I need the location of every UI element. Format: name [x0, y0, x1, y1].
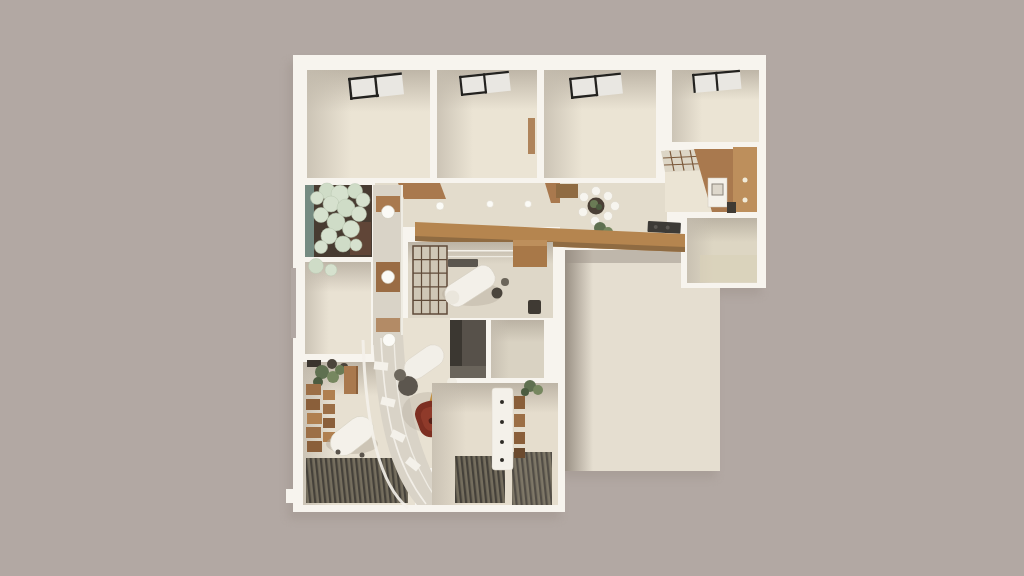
shelf-box	[306, 384, 321, 395]
round-planter	[315, 241, 328, 254]
shelf-box	[514, 432, 525, 444]
round-planter	[325, 264, 337, 276]
shelf-box	[323, 404, 335, 414]
shelf-box	[323, 390, 335, 400]
dark-bin	[528, 300, 541, 314]
dining-chair	[579, 208, 588, 217]
wall-stub	[286, 489, 294, 503]
shelf-box	[306, 399, 320, 410]
plant	[521, 388, 529, 396]
shoji-screen	[413, 246, 447, 314]
cooktop	[647, 221, 681, 234]
ceiling-light	[382, 206, 395, 219]
room-shade-left	[305, 262, 329, 354]
room-shade-left	[491, 320, 509, 378]
dining-chair	[592, 187, 601, 196]
small-beige-room	[491, 320, 544, 378]
curve-seat	[374, 361, 389, 370]
room-shade-left	[307, 70, 351, 178]
desk-leg	[336, 450, 341, 455]
tall-cabinet	[344, 366, 358, 394]
fridge-panel	[712, 184, 723, 195]
shelf-knob	[500, 400, 504, 404]
shelf-box	[514, 448, 525, 458]
shelf-box	[307, 413, 322, 424]
top-room-4	[672, 70, 759, 142]
table-plant	[596, 204, 602, 210]
deck-floor	[512, 452, 552, 505]
cabinet-knob	[743, 178, 748, 183]
ceiling-light	[487, 201, 494, 208]
left-wall-notch	[291, 268, 296, 338]
shelf-knob	[500, 458, 504, 462]
ceiling-light	[436, 202, 444, 210]
plant	[335, 365, 345, 375]
floor-hint	[450, 366, 486, 378]
wood-cabinet	[405, 186, 431, 198]
dining-chair	[611, 202, 620, 211]
shelf-knob	[500, 420, 504, 424]
wood-niche	[376, 318, 400, 332]
round-planter	[350, 239, 362, 251]
treatment-room	[408, 240, 553, 318]
entry-room	[432, 380, 558, 505]
sideboard	[556, 184, 578, 198]
band-edge	[401, 185, 403, 345]
desk-leg	[360, 453, 365, 458]
cooktop-surface	[647, 221, 681, 234]
ceiling-light	[382, 271, 395, 284]
shelf-box	[514, 414, 525, 427]
terrace-top-shadow	[563, 250, 681, 263]
plant	[533, 385, 543, 395]
shelf-box	[307, 441, 322, 452]
top-room-2	[437, 70, 537, 178]
dining-chair	[604, 192, 613, 201]
shelf-box	[323, 418, 335, 428]
round-planter	[311, 192, 324, 205]
lower-right-room	[687, 218, 757, 283]
floor-tint	[700, 255, 757, 282]
top-room-1	[307, 70, 430, 178]
dark-storage-room	[450, 320, 486, 378]
cabinet-knob	[743, 198, 748, 203]
dining-chair	[580, 193, 589, 202]
gray-pouf	[394, 369, 406, 381]
side-table	[501, 278, 509, 286]
terrace-left-shadow	[563, 250, 593, 471]
dining-chair	[604, 212, 613, 221]
dark-stool	[327, 359, 337, 369]
round-planter	[356, 193, 370, 207]
ceiling-light	[383, 334, 396, 347]
round-planter	[343, 221, 360, 238]
sink-counter	[448, 259, 478, 267]
cabinet-edge	[356, 366, 358, 394]
dark-appliance	[727, 202, 736, 213]
round-planter	[335, 236, 351, 252]
striped-rug	[306, 458, 408, 503]
plant	[315, 365, 329, 379]
shelf-box	[514, 396, 525, 409]
floor-plan-svg	[0, 0, 1024, 576]
ceiling-light	[525, 201, 532, 208]
shelf-knob	[500, 440, 504, 444]
wood-door-sliver	[528, 118, 535, 154]
shelf-box	[306, 427, 321, 438]
mid-left-room	[305, 262, 371, 354]
stool	[492, 288, 503, 299]
round-planter	[352, 207, 367, 222]
round-planter	[314, 208, 329, 223]
top-room-3	[544, 70, 656, 178]
round-planter	[309, 259, 324, 274]
floor-plan-render	[0, 0, 1024, 576]
wood-cabinet-top	[513, 240, 547, 246]
